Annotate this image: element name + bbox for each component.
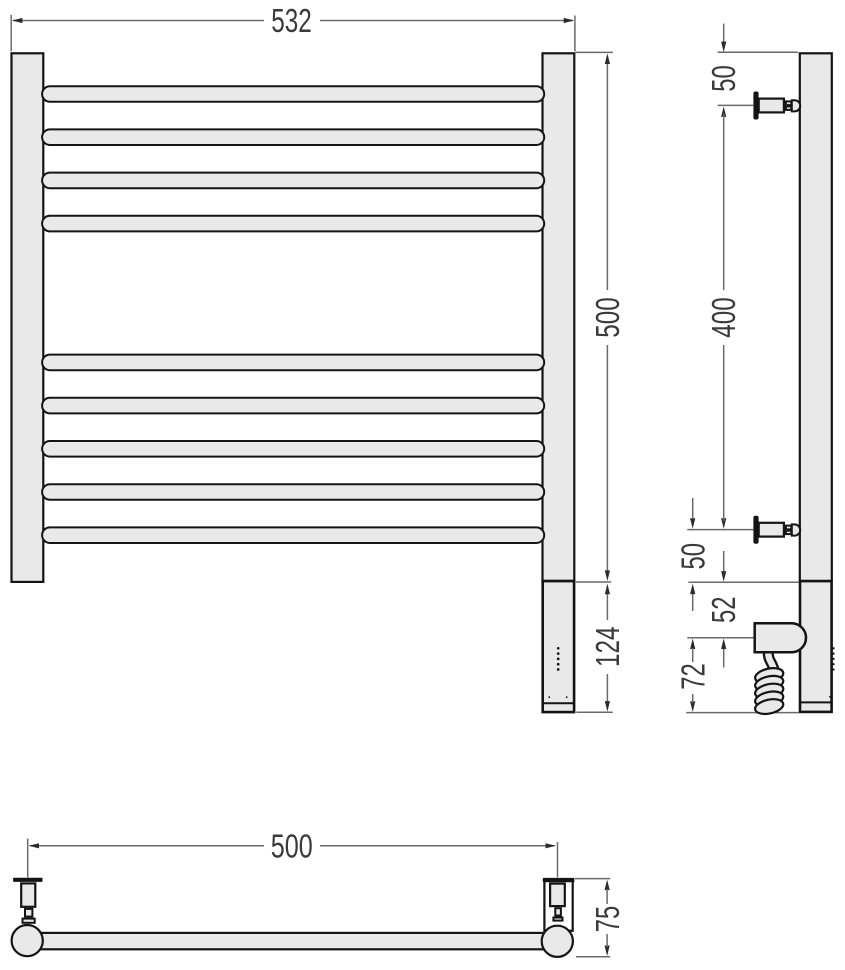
svg-text:400: 400 (705, 297, 742, 338)
svg-text:500: 500 (271, 828, 313, 865)
svg-text:52: 52 (705, 597, 742, 624)
svg-text:75: 75 (589, 906, 626, 933)
svg-text:72: 72 (675, 663, 712, 690)
svg-text:50: 50 (705, 65, 742, 92)
svg-text:50: 50 (675, 543, 712, 570)
svg-text:124: 124 (589, 627, 626, 668)
svg-text:500: 500 (589, 297, 626, 338)
svg-text:532: 532 (271, 2, 312, 39)
